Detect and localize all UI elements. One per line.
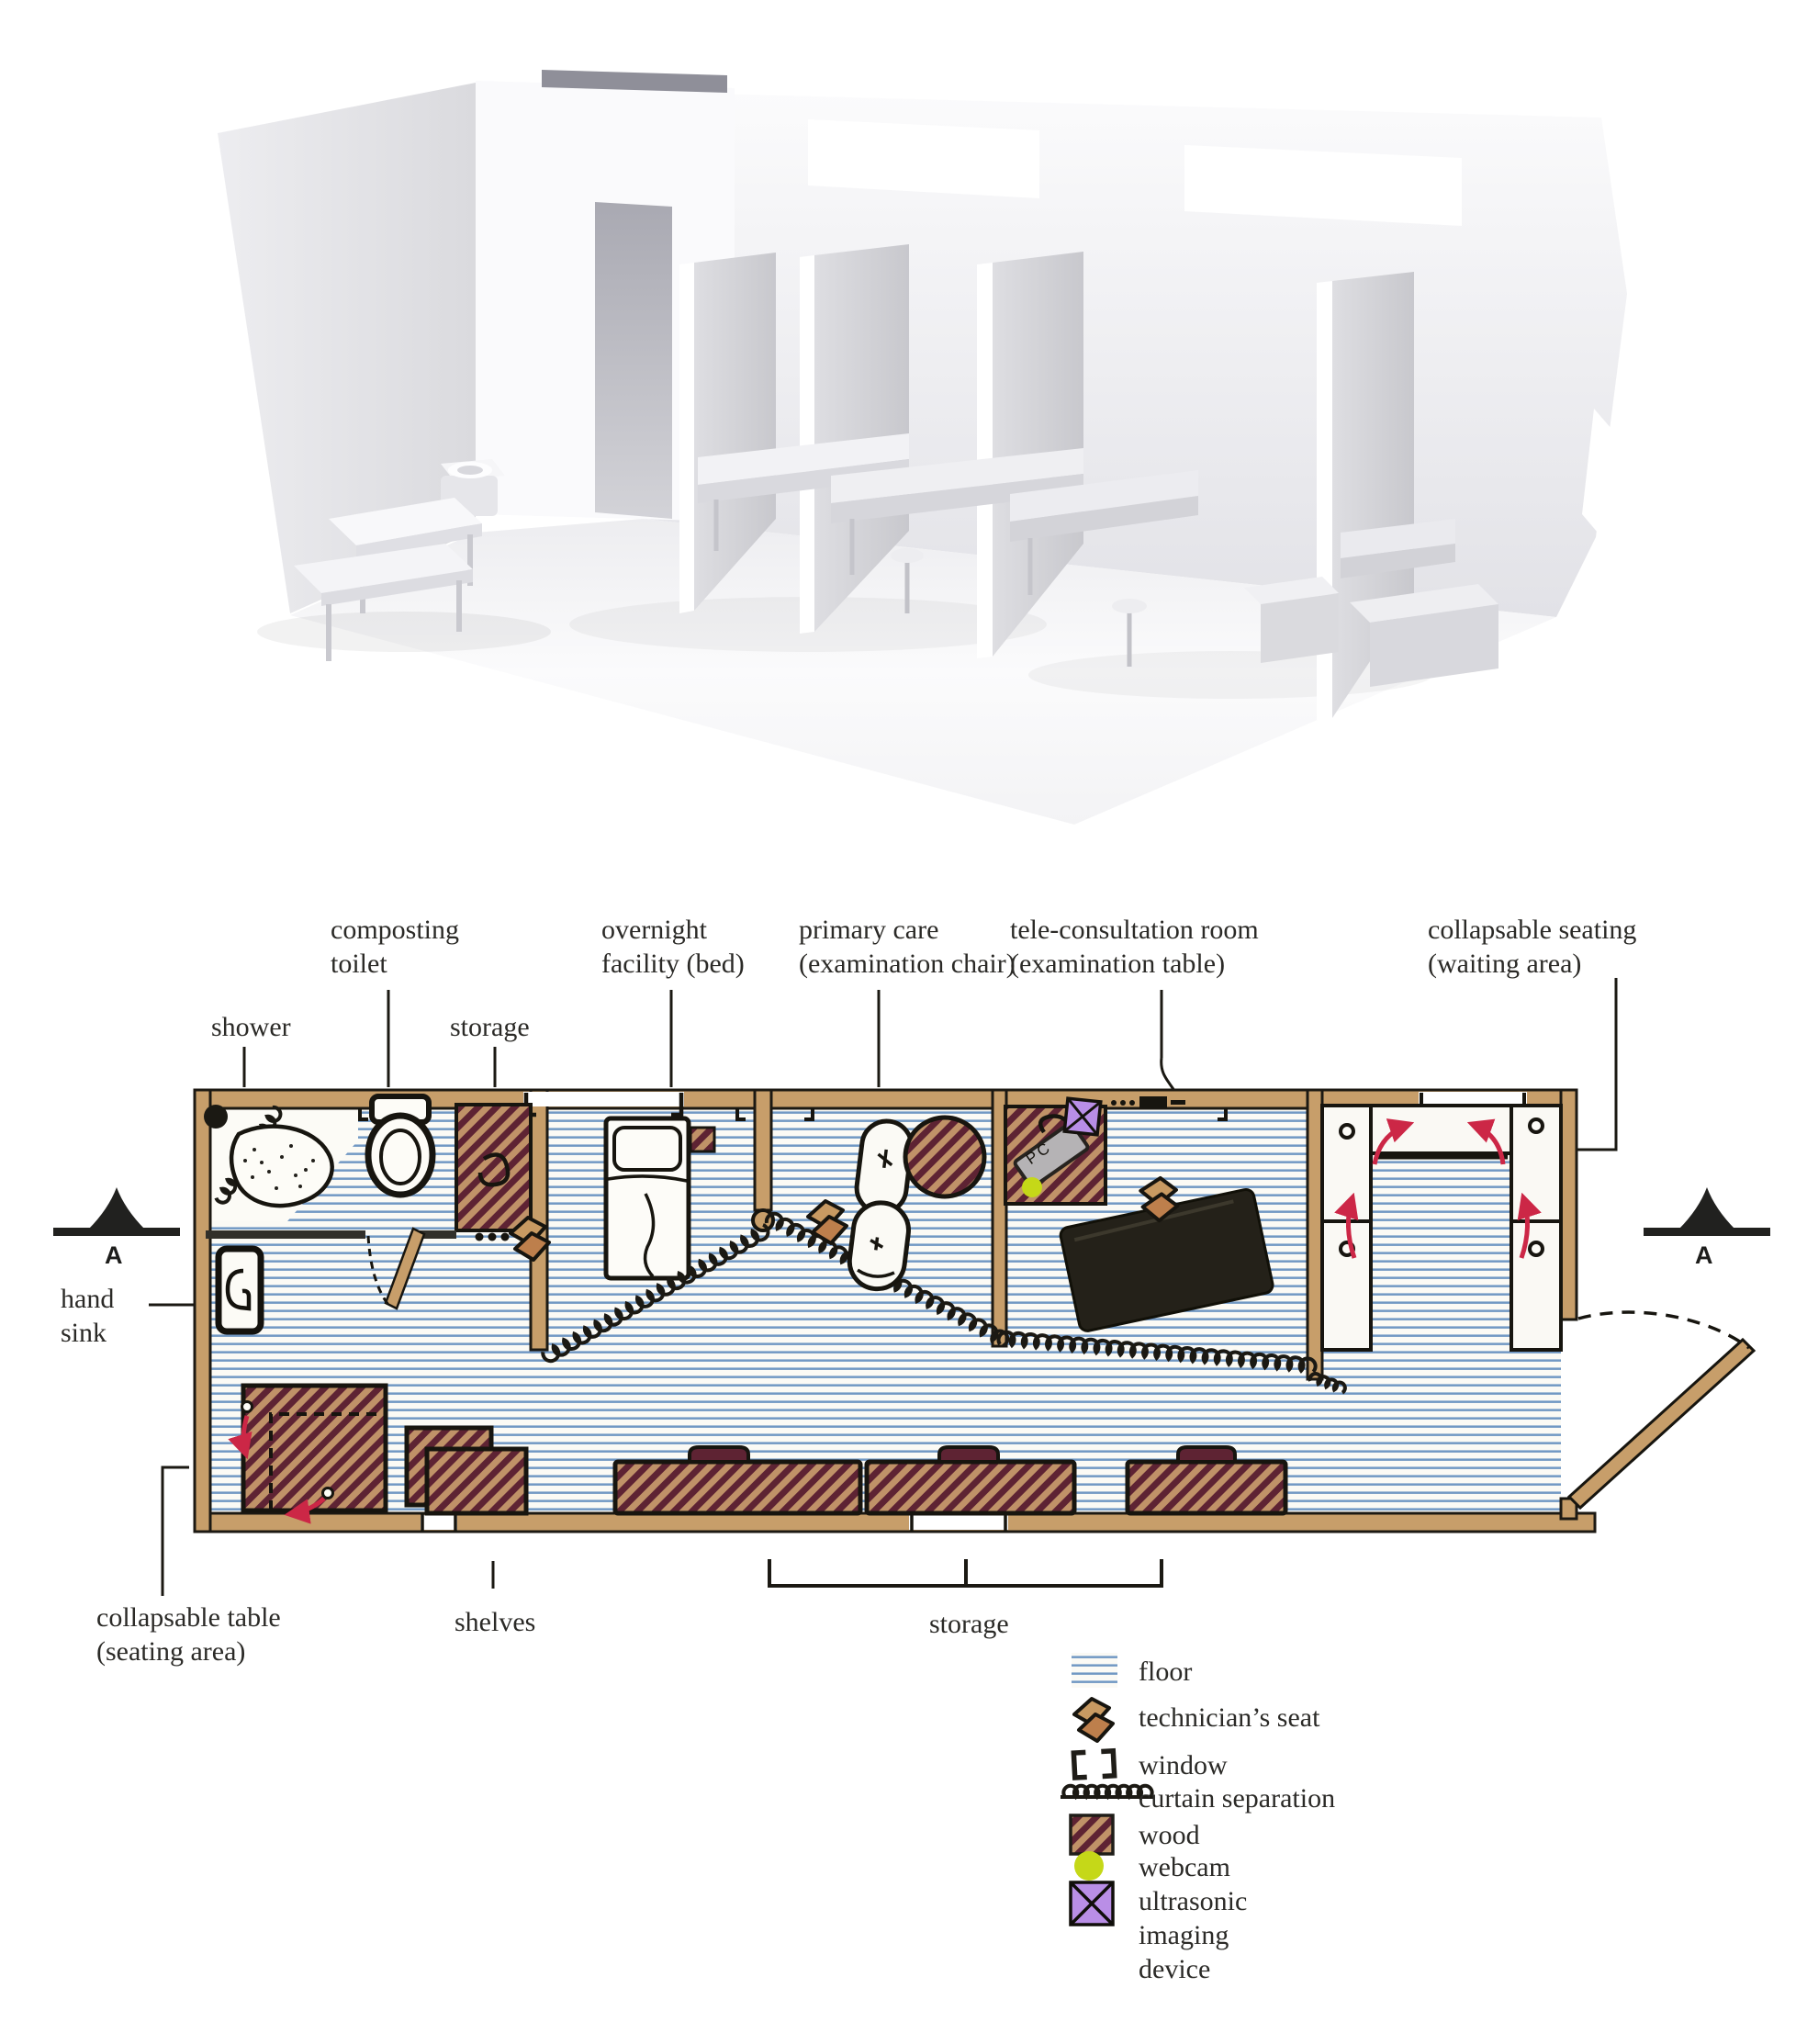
label-composting-toilet: compostingtoilet	[331, 913, 459, 981]
label-tele-consultation: tele-consultation room(examination table…	[1010, 913, 1259, 981]
legend-label-curtain: curtain separation	[1139, 1781, 1335, 1815]
legend-window-icon	[1073, 1751, 1114, 1778]
legend-label-floor: floor	[1139, 1655, 1192, 1689]
legend-label-ultrasonic: ultrasonic imaging device	[1139, 1884, 1247, 1986]
bathroom-storage-cabinet	[456, 1105, 531, 1230]
ultrasonic-imaging-device	[1064, 1098, 1101, 1135]
render-window-1	[808, 119, 1039, 198]
shower-head	[204, 1105, 228, 1129]
door-swing-arc	[1578, 1312, 1749, 1348]
plan-right-wall-upper	[1561, 1090, 1577, 1320]
legend-label-wood: wood	[1139, 1818, 1200, 1852]
legend-label-webcam: webcam	[1139, 1850, 1230, 1884]
overnight-bed	[606, 1118, 689, 1278]
section-label-right: A	[1695, 1241, 1713, 1270]
hand-sink	[219, 1249, 261, 1331]
floor-plan	[195, 1090, 1754, 1532]
wall-waiting-partition	[1308, 1090, 1322, 1379]
label-primary-care: primary care(examination chair)	[799, 913, 1016, 981]
section-marker-right	[1644, 1187, 1770, 1236]
leader-collapsable-seating	[1574, 978, 1616, 1150]
label-collapsable-seating: collapsable seating(waiting area)	[1428, 913, 1636, 981]
legend-floor-swatch	[1072, 1653, 1117, 1688]
section-label-left: A	[105, 1241, 123, 1270]
legend-ultrasonic-icon	[1071, 1882, 1113, 1925]
storage-bracket	[769, 1559, 1162, 1586]
storage-cases	[615, 1447, 1285, 1513]
legend-label-window: window	[1139, 1748, 1228, 1782]
round-wood-table	[905, 1117, 984, 1196]
label-shower: shower	[211, 1010, 291, 1044]
label-overnight-facility: overnightfacility (bed)	[601, 913, 745, 981]
label-hand-sink: handsink	[61, 1282, 114, 1350]
legend-technician-seat-icon	[1074, 1699, 1113, 1741]
shower-tray	[231, 1127, 332, 1206]
consultation-desk	[1005, 1098, 1106, 1204]
bedside-wood-unit	[690, 1128, 714, 1151]
legend-label-technicians-seat: technician’s seat	[1139, 1701, 1319, 1735]
section-marker-left	[53, 1187, 180, 1236]
page: compostingtoilet shower storage overnigh…	[0, 0, 1807, 2044]
composting-toilet	[368, 1096, 432, 1195]
label-shelves: shelves	[455, 1605, 535, 1639]
wall-bedroom-right	[755, 1090, 771, 1210]
label-storage-bottom: storage	[929, 1607, 1009, 1641]
legend-wood-swatch	[1071, 1815, 1113, 1854]
legend-webcam-icon	[1074, 1851, 1104, 1881]
webcam	[1022, 1177, 1042, 1197]
leader-collapsable-table	[163, 1467, 189, 1596]
label-storage-top: storage	[450, 1010, 530, 1044]
render-3d	[218, 70, 1627, 825]
door-leaf	[1569, 1340, 1754, 1508]
collapsable-table	[242, 1386, 387, 1514]
entry-door	[1561, 1312, 1754, 1508]
label-collapsable-table: collapsable table(seating area)	[96, 1600, 281, 1668]
